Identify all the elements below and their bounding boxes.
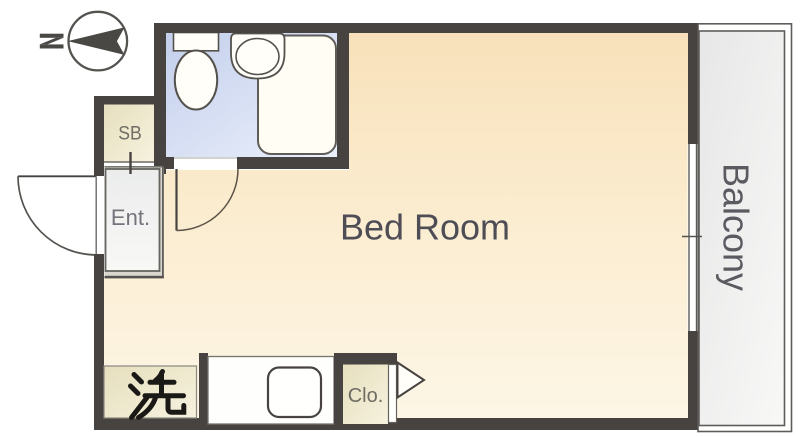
svg-text:Ent.: Ent.: [111, 205, 150, 230]
svg-text:Clo.: Clo.: [348, 385, 384, 407]
svg-text:SB: SB: [118, 123, 142, 145]
svg-text:Bed Room: Bed Room: [340, 207, 510, 248]
svg-text:Balcony: Balcony: [716, 163, 757, 291]
